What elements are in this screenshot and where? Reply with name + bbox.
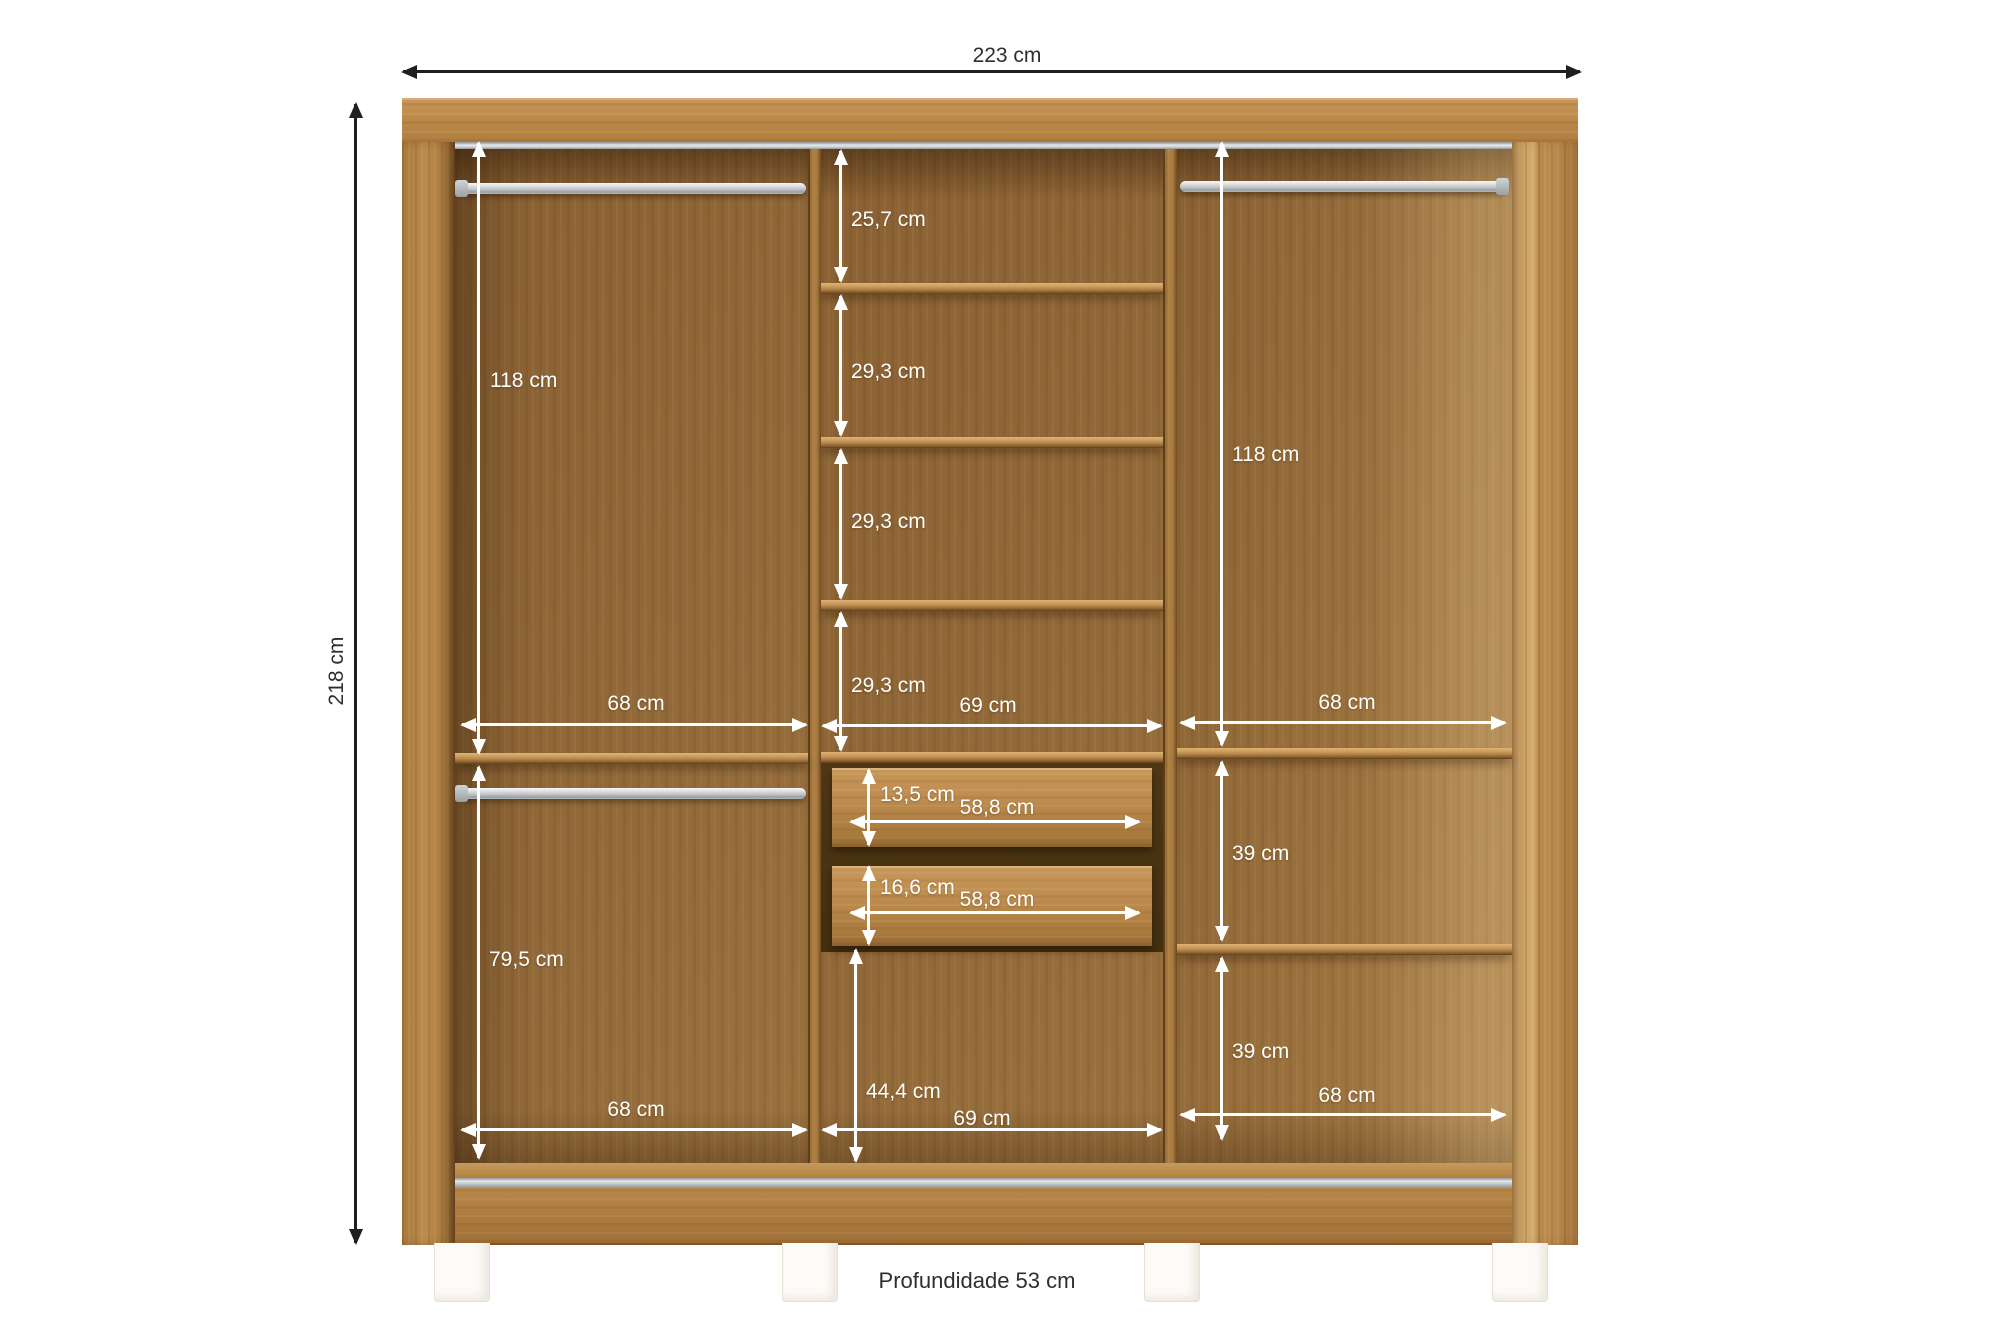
middle-compartment-2-dim-line [839, 296, 842, 435]
foot-1 [434, 1243, 490, 1302]
left-hanging-height-dim-line [477, 143, 480, 753]
left-side-panel [402, 142, 455, 1245]
middle-compartment-2-label: 29,3 cm [851, 360, 926, 384]
right-upper-width-label: 68 cm [1318, 691, 1375, 715]
left-upper-width-dim-line [462, 723, 806, 726]
right-section-back-panel [1177, 142, 1512, 1163]
bottom-sliding-track [455, 1178, 1512, 1188]
middle-upper-width-label: 69 cm [959, 694, 1016, 718]
middle-shelf-3 [821, 600, 1163, 611]
left-lower-rail-bracket [455, 785, 468, 802]
left-middle-shelf [455, 753, 808, 764]
right-hanging-height-dim-line [1220, 143, 1223, 745]
left-section-back-panel [455, 142, 808, 1163]
foot-2 [782, 1243, 838, 1302]
right-upper-shelf [1177, 748, 1512, 759]
right-lower-shelf-height-label: 39 cm [1232, 1040, 1289, 1064]
middle-lower-width-label: 69 cm [953, 1107, 1010, 1131]
base-plinth [455, 1188, 1512, 1245]
left-upper-width-label: 68 cm [607, 692, 664, 716]
right-lower-width-dim-line [1181, 1113, 1505, 1116]
right-hanging-height-label: 118 cm [1232, 443, 1299, 467]
right-rail-bracket [1496, 178, 1509, 195]
right-upper-shelf-height-label: 39 cm [1232, 842, 1289, 866]
middle-compartment-4-dim-line [839, 613, 842, 750]
right-lower-width-label: 68 cm [1318, 1084, 1375, 1108]
middle-section-back-panel [821, 142, 1163, 1163]
left-lower-width-label: 68 cm [607, 1098, 664, 1122]
middle-shelf-2 [821, 437, 1163, 448]
top-sliding-track [455, 142, 1512, 149]
depth-label: Profundidade 53 cm [879, 1268, 1076, 1294]
middle-compartment-4-label: 29,3 cm [851, 674, 926, 698]
middle-compartment-3-label: 29,3 cm [851, 510, 926, 534]
overall-height-label: 218 cm [325, 637, 349, 706]
divider-panel-right [1163, 149, 1177, 1163]
overall-height-dim-line [354, 104, 357, 1243]
right-upper-shelf-height-dim-line [1220, 762, 1223, 940]
right-lower-shelf-height-dim-line [1220, 958, 1223, 1139]
bottom-panel [455, 1163, 1512, 1178]
right-lower-shelf [1177, 944, 1512, 955]
drawer-1-height-label: 13,5 cm [880, 783, 955, 807]
left-lower-width-dim-line [462, 1128, 806, 1131]
overall-width-label: 223 cm [973, 44, 1042, 68]
middle-compartment-1-label: 25,7 cm [851, 208, 926, 232]
right-upper-width-dim-line [1181, 721, 1505, 724]
drawer-1-height-dim-line [867, 770, 870, 845]
left-lower-height-label: 79,5 cm [489, 948, 564, 972]
middle-upper-width-dim-line [823, 724, 1161, 727]
left-hanging-height-label: 118 cm [490, 369, 557, 393]
drawer-2-height-label: 16,6 cm [880, 876, 955, 900]
right-side-panel [1512, 142, 1578, 1245]
left-lower-hanging-rail [458, 788, 806, 799]
middle-shelf-4 [821, 752, 1163, 763]
middle-compartment-3-dim-line [839, 450, 842, 598]
right-hanging-rail [1180, 181, 1506, 192]
middle-lower-height-label: 44,4 cm [866, 1080, 941, 1104]
foot-4 [1492, 1243, 1548, 1302]
left-upper-rail-bracket [455, 180, 468, 197]
overall-width-dim-line [403, 70, 1580, 73]
middle-shelf-1 [821, 283, 1163, 294]
top-frame-panel [402, 98, 1578, 142]
drawer-1-width-dim-line [851, 820, 1139, 823]
wardrobe-dimension-diagram: 223 cm 218 cm 118 cm 68 cm 79,5 cm 68 cm… [0, 0, 2000, 1333]
divider-panel-left [808, 149, 821, 1163]
foot-3 [1144, 1243, 1200, 1302]
drawer-2-height-dim-line [867, 867, 870, 944]
left-lower-height-dim-line [477, 767, 480, 1158]
drawer-1-width-label: 58,8 cm [960, 796, 1035, 820]
drawer-2-width-label: 58,8 cm [960, 888, 1035, 912]
middle-compartment-1-dim-line [839, 151, 842, 281]
left-upper-hanging-rail [458, 183, 806, 194]
